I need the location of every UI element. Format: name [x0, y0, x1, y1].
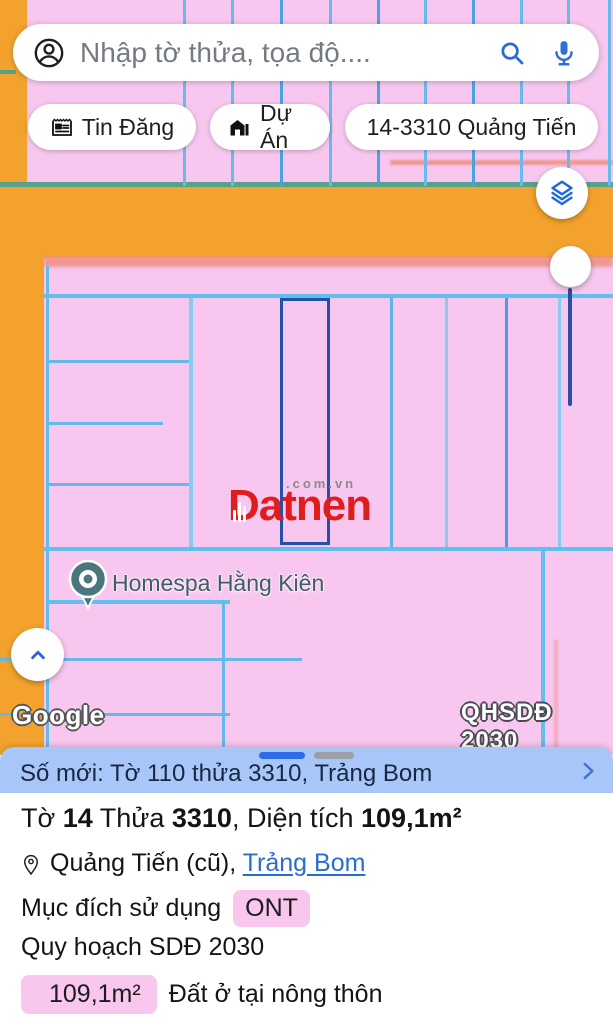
pagination-dots — [0, 752, 613, 759]
chevron-up-icon — [25, 642, 51, 668]
parcel-line — [189, 298, 193, 547]
news-icon — [50, 115, 74, 139]
location-pin-icon — [21, 851, 41, 877]
area-label: Đất ở tại nông thôn — [169, 980, 383, 1009]
purpose-badge: ONT — [233, 890, 310, 927]
district-link[interactable]: Trảng Bom — [243, 849, 366, 877]
land-purpose-row: Mục đích sử dụng ONT — [21, 890, 310, 927]
salmon-line — [44, 256, 613, 267]
app-screen: .com.vn Datnen Homespa Hằng Kiên Google … — [0, 0, 613, 1024]
parcel-line — [46, 266, 49, 755]
pagination-dot-active[interactable] — [259, 752, 305, 759]
chip-label: 14-3310 Quảng Tiến — [367, 114, 577, 141]
area-row: 109,1m² Đất ở tại nông thôn — [21, 975, 382, 1014]
planning-label: Quy hoạch SDĐ 2030 — [21, 933, 264, 962]
parcel-line — [558, 298, 561, 547]
mic-icon[interactable] — [549, 38, 579, 68]
watermark: .com.vn Datnen — [228, 468, 388, 540]
search-input[interactable] — [80, 37, 497, 69]
google-logo: Google — [12, 700, 105, 731]
poi-pin-icon[interactable] — [66, 558, 110, 610]
search-icon[interactable] — [497, 38, 527, 68]
parcel-line — [445, 298, 448, 547]
map-orange-strip-top — [0, 0, 27, 188]
area-badge: 109,1m² — [21, 975, 157, 1014]
chip-parcel[interactable]: 14-3310 Quảng Tiến — [345, 104, 598, 150]
parcel-line — [48, 422, 163, 425]
chip-du-an[interactable]: Dự Án — [210, 104, 330, 150]
zoom-slider-handle[interactable] — [550, 246, 591, 287]
chip-label: Tin Đăng — [82, 114, 174, 141]
parcel-line — [222, 600, 225, 755]
watermark-building-icon — [233, 496, 251, 522]
search-bar[interactable] — [13, 24, 599, 81]
layers-button[interactable] — [536, 167, 588, 219]
parcel-line — [505, 298, 508, 547]
road-edge-line — [0, 70, 16, 74]
parcel-line — [44, 547, 613, 551]
project-building-icon — [228, 115, 252, 139]
map-road-band — [0, 186, 613, 258]
parcel-line — [608, 0, 611, 186]
parcel-line — [48, 483, 190, 486]
parcel-location: Quảng Tiến (cũ), Trảng Bom — [21, 849, 365, 878]
parcel-info-bar[interactable]: Số mới: Tờ 110 thửa 3310, Trảng Bom — [0, 747, 613, 793]
purpose-label: Mục đích sử dụng — [21, 894, 221, 923]
parcel-title: Tờ 14 Thửa 3310, Diện tích 109,1m² — [21, 803, 462, 834]
chip-tin-dang[interactable]: Tin Đăng — [28, 104, 196, 150]
chevron-right-icon[interactable] — [575, 758, 601, 784]
parcel-details-panel: Tờ 14 Thửa 3310, Diện tích 109,1m² Quảng… — [0, 793, 613, 1024]
account-icon[interactable] — [32, 36, 66, 70]
layers-icon — [547, 178, 577, 208]
pagination-dot-inactive[interactable] — [314, 752, 354, 759]
zoom-slider-track[interactable] — [568, 288, 572, 406]
poi-label[interactable]: Homespa Hằng Kiên — [112, 570, 324, 597]
planning-row: Quy hoạch SDĐ 2030 — [21, 933, 264, 962]
parcel-line — [390, 298, 393, 547]
parcel-line — [48, 360, 190, 363]
collapse-panel-button[interactable] — [11, 628, 64, 681]
info-bar-title: Số mới: Tờ 110 thửa 3310, Trảng Bom — [20, 760, 432, 788]
chip-label: Dự Án — [260, 100, 312, 154]
